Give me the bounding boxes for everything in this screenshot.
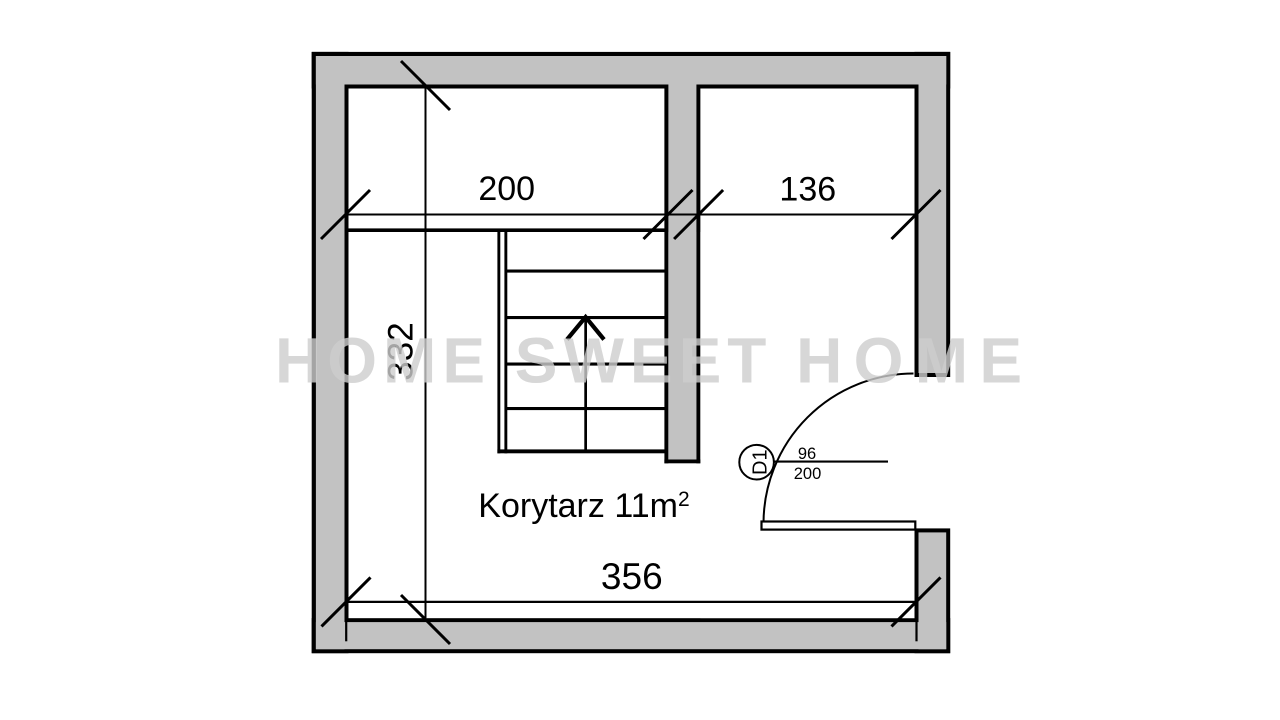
svg-text:Korytarz 11m2: Korytarz 11m2 [478, 487, 689, 525]
svg-text:96: 96 [798, 445, 816, 463]
svg-text:136: 136 [779, 171, 836, 209]
svg-text:356: 356 [601, 556, 663, 597]
svg-text:D1: D1 [749, 449, 771, 475]
svg-text:HOME SWEET HOME: HOME SWEET HOME [275, 324, 1033, 396]
svg-text:200: 200 [794, 465, 822, 483]
svg-text:200: 200 [478, 170, 535, 208]
